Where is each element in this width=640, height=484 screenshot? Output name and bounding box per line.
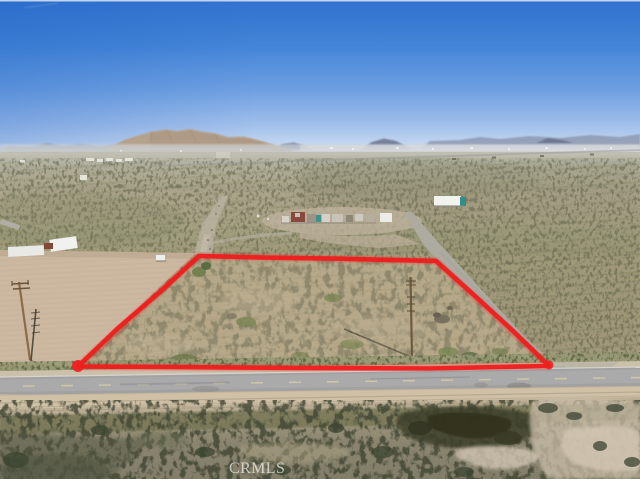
svg-text:CRMLS: CRMLS [229, 460, 285, 477]
